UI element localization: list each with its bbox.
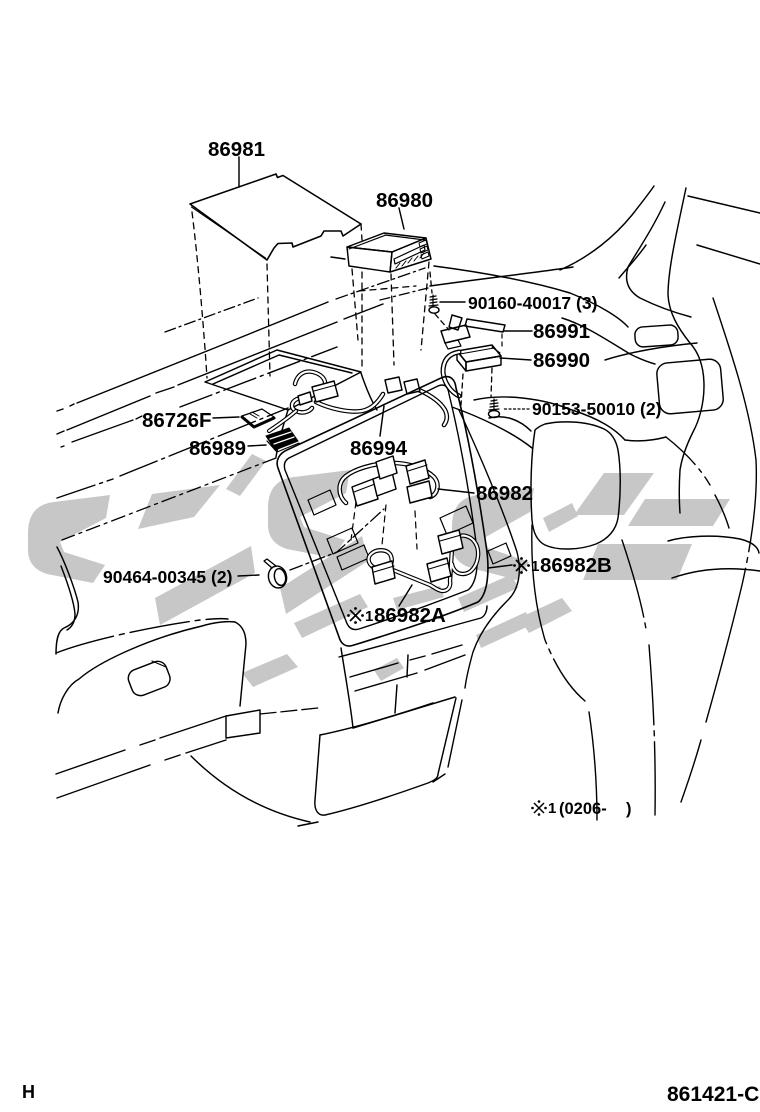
svg-text:90153-50010 (2): 90153-50010 (2) [532,399,661,419]
svg-text:1: 1 [548,800,556,817]
svg-text:86990: 86990 [533,349,590,372]
svg-text:86994: 86994 [350,437,408,460]
svg-text:86991: 86991 [533,320,590,343]
svg-text:1: 1 [365,608,373,625]
svg-text:1: 1 [531,558,539,575]
svg-text:86982: 86982 [476,482,533,505]
svg-text:90464-00345 (2): 90464-00345 (2) [103,567,232,587]
svg-text:86980: 86980 [376,189,433,212]
svg-text:86726F: 86726F [142,409,212,432]
svg-text:861421-C: 861421-C [667,1083,759,1106]
svg-text:86982A: 86982A [374,604,446,627]
svg-text:(0206-: (0206- [559,800,607,818]
svg-text:86989: 86989 [189,437,246,460]
svg-text:86981: 86981 [208,138,265,161]
svg-text:90160-40017 (3): 90160-40017 (3) [468,293,597,313]
svg-text:): ) [626,800,632,818]
svg-text:86982B: 86982B [540,554,612,577]
svg-text:H: H [22,1082,35,1102]
